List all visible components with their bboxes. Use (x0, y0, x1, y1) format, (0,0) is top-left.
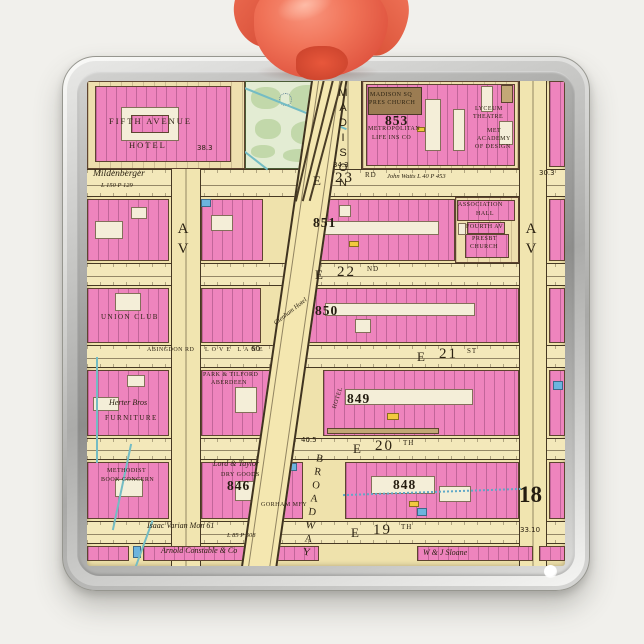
building-name-label: ABINGDON RD (147, 347, 194, 353)
building-name-label: OF DESIGN (475, 144, 511, 150)
building-courtyard (425, 99, 441, 151)
building-name-label: LIFE INS CO (372, 135, 411, 141)
ribbon (238, 0, 406, 86)
park-lawn (251, 145, 275, 158)
blue-lot (553, 381, 563, 390)
street-name-label: E (351, 526, 360, 539)
outbuilding (501, 85, 513, 103)
street-name-label: E (417, 350, 426, 363)
block-number-label: 846 (227, 479, 250, 493)
watercourse-line (96, 357, 98, 463)
building-mass (201, 288, 261, 343)
owner-name-label: John Watts L 40 P 453 (387, 174, 446, 181)
street-number-label: 19 (373, 523, 392, 538)
building-mass (549, 199, 565, 261)
building-name-label: LYCEUM (475, 106, 503, 112)
block-number-label: 853 (385, 114, 408, 128)
building-name-label: HALL (476, 211, 494, 217)
street-name-label: E (353, 442, 362, 455)
yellow-lot (387, 413, 399, 420)
block-number-label: 848 (393, 478, 416, 492)
owner-name-label: Mildenberger (93, 170, 145, 180)
building-courtyard (355, 319, 371, 333)
street-band (87, 263, 565, 286)
atlas-map: MildenbergerL 150 P 129E23RDJohn Watts L… (87, 81, 565, 566)
outbuilding (327, 428, 439, 434)
building-courtyard (458, 223, 466, 235)
park-lawn (255, 119, 281, 139)
building-courtyard (339, 205, 351, 217)
owner-name-label: Arnold Constable & Co (161, 547, 237, 555)
building-mass (549, 462, 565, 519)
building-name-label: ACADEMY (477, 136, 511, 142)
specular-highlight (544, 565, 557, 578)
building-name-label: ASSOCIATION (458, 202, 503, 208)
street-number-label: 21 (439, 347, 458, 362)
measurement-label: 30.3 (539, 170, 555, 177)
block-number-label: 850 (315, 304, 338, 318)
building-name-label: CHURCH (470, 244, 498, 250)
building-mass (549, 288, 565, 343)
measurement-label: 38.3 (197, 145, 213, 152)
building-name-label: PRES CHURCH (369, 100, 415, 106)
building-courtyard (95, 221, 123, 239)
blue-lot (201, 199, 211, 207)
building-courtyard (439, 486, 471, 502)
avenue-name-label: AV (523, 221, 538, 261)
street-suffix-label: TH (401, 524, 412, 531)
street-suffix-label: ST (467, 348, 477, 355)
owner-name-label: Lord & Taylor (213, 460, 259, 468)
building-name-label: HOTEL (129, 141, 167, 150)
plate-number-label: 18 (519, 483, 542, 506)
building-name-label: MADISON SQ (370, 92, 412, 98)
yellow-lot (349, 241, 359, 247)
building-mass (539, 546, 565, 561)
ornament-frame: MildenbergerL 150 P 129E23RDJohn Watts L… (62, 56, 590, 591)
yellow-lot (409, 501, 419, 507)
building-mass (549, 81, 565, 167)
building-name-label: METHODIST (107, 468, 146, 474)
building-mass (549, 370, 565, 436)
street-suffix-label: TH (403, 440, 414, 447)
building-name-label: UNION CLUB (101, 314, 159, 321)
owner-name-label: Herter Bros (109, 399, 147, 407)
product-photo: MildenbergerL 150 P 129E23RDJohn Watts L… (0, 0, 644, 644)
building-name-label: BOOK CONCERN (101, 477, 154, 483)
street-name-label: E (313, 174, 322, 187)
measurement-label: 40.5 (301, 437, 317, 444)
building-name-label: PRESBT (472, 236, 497, 242)
building-name-label: PARK & TILFORD (203, 372, 258, 378)
street-number-label: 20 (375, 439, 394, 454)
building-courtyard (453, 109, 465, 151)
building-mass (87, 546, 129, 561)
building-name-label: THEATRE (473, 114, 503, 120)
building-courtyard (127, 375, 145, 387)
measurement-label: 33.10 (520, 527, 540, 534)
street-band (87, 438, 565, 460)
building-courtyard (325, 303, 475, 316)
avenue-name-label: MADISON (337, 87, 348, 192)
measurement-label: 60 (251, 346, 260, 353)
street-name-label: E (315, 268, 324, 281)
building-courtyard (235, 387, 257, 413)
block-number-label: 851 (313, 216, 336, 230)
owner-name-label: L 85 P 308 (227, 533, 255, 540)
building-courtyard (131, 207, 147, 219)
street-suffix-label: RD (365, 172, 377, 179)
street-number-label: 22 (337, 265, 356, 280)
block-number-label: 849 (347, 392, 370, 406)
building-courtyard (211, 215, 233, 231)
building-courtyard (115, 293, 141, 311)
building-name-label: FOURTH AV (466, 224, 503, 230)
building-name-label: ABERDEEN (211, 380, 247, 386)
owner-name-label: Isaac Varian Mon 61 (147, 522, 214, 530)
blue-lot (417, 508, 427, 516)
building-name-label: MET (487, 128, 501, 134)
street-suffix-label: ND (367, 266, 379, 273)
building-name-label: FURNITURE (105, 415, 158, 422)
owner-name-label: L 150 P 129 (101, 183, 133, 190)
owner-name-label: W & J Sloane (423, 549, 467, 557)
avenue-name-label: AV (175, 221, 190, 261)
building-name-label: GORHAM MFY (261, 502, 307, 508)
building-name-label: FIFTH AVENUE (109, 117, 192, 126)
